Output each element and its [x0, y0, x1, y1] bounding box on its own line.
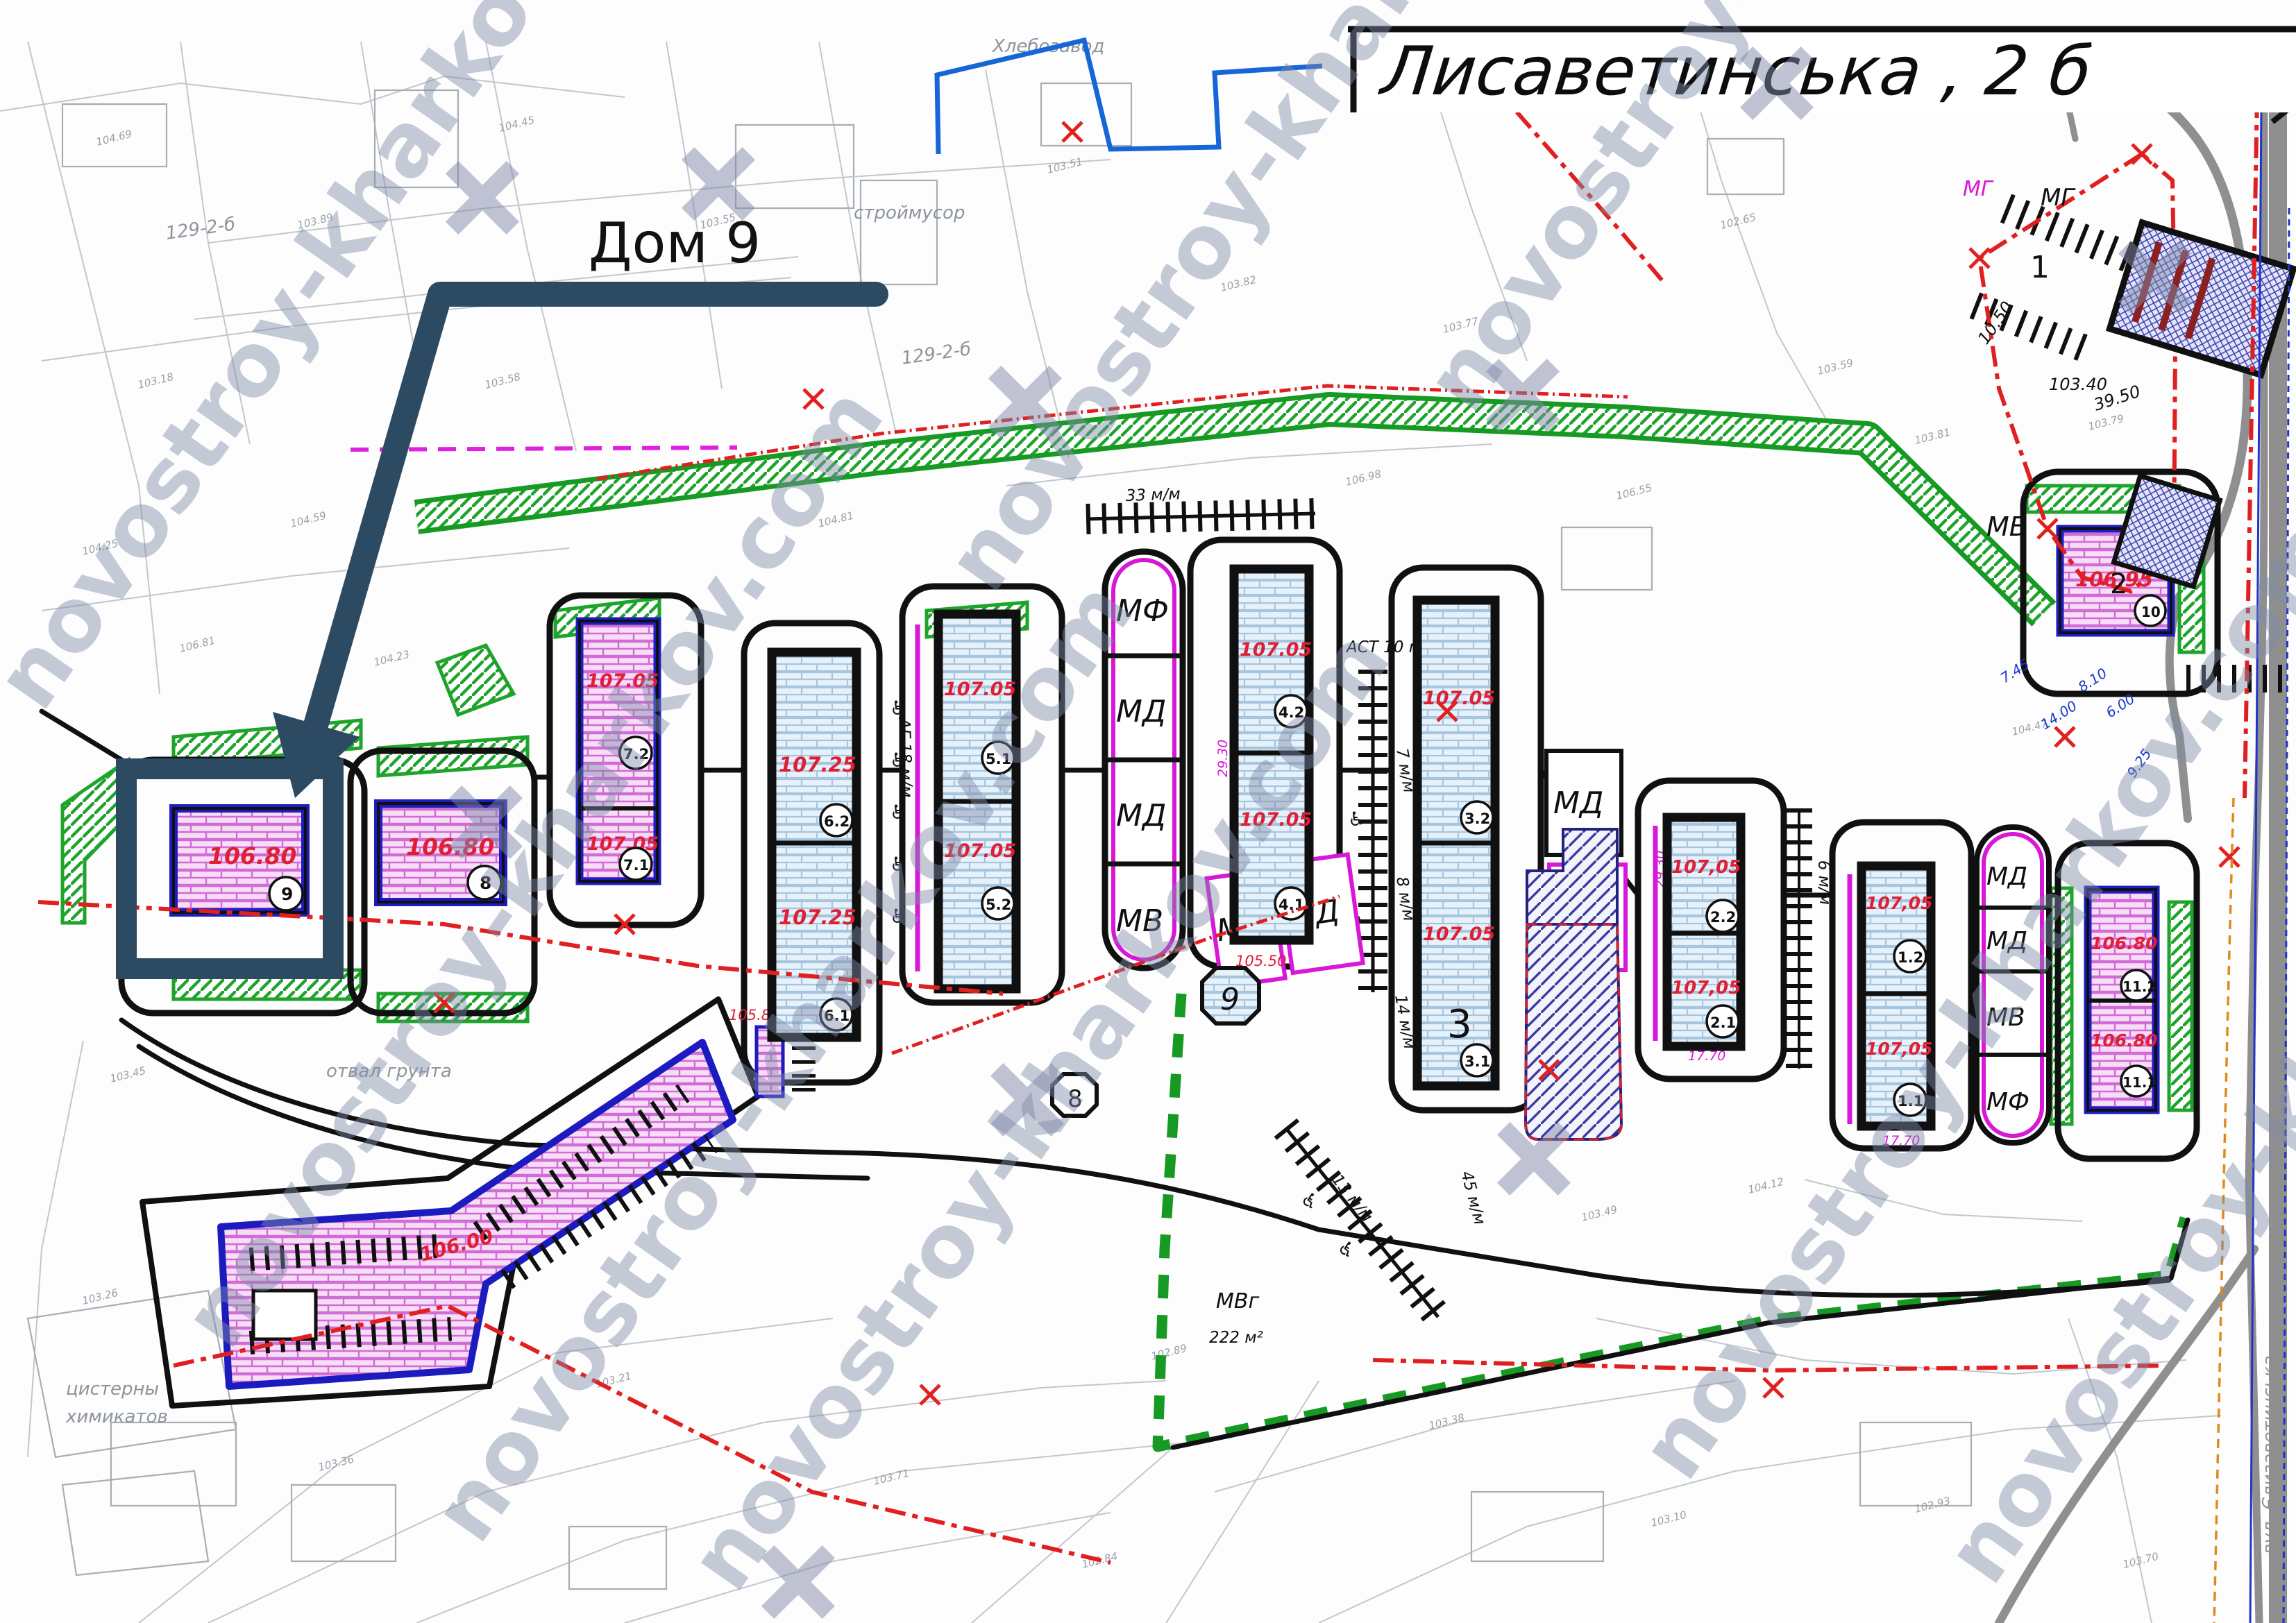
- tp9-elevation: 105.50: [1235, 953, 1286, 969]
- survey-mark: 103.49: [1580, 1203, 1619, 1224]
- house-9-label: Дом 9: [589, 211, 761, 275]
- wheelchair-icon: ♿: [1333, 1235, 1361, 1264]
- dim-10-50: 10.50: [1974, 298, 2017, 348]
- wheelchair-icon: ♿: [1348, 808, 1365, 831]
- mg-label-magenta: МГ: [1963, 177, 1994, 201]
- building-11-2-elevation: 106.80: [2091, 933, 2157, 953]
- building-3-1-elevation: 107.05: [1423, 924, 1495, 945]
- survey-mark: 106.81: [178, 634, 217, 655]
- survey-mark: 103.38: [1428, 1411, 1466, 1432]
- mg-label-black: МГ: [2041, 184, 2076, 212]
- parking-33-label: 33 м/м: [1125, 485, 1181, 505]
- tp9-number: 9: [1220, 982, 1240, 1017]
- site-plan-map: 104.69103.89104.45103.55103.51103.82103.…: [0, 0, 2296, 1623]
- site-building-1-number: 1: [2030, 250, 2050, 285]
- building-9-number: 9: [281, 884, 293, 904]
- building-9: 106.80 9: [174, 808, 305, 912]
- building-2-2-number: 2.2: [1710, 909, 1736, 926]
- wheelchair-icon: ♿: [1297, 1187, 1324, 1215]
- survey-mark: 103.10: [1650, 1509, 1688, 1529]
- stroymusor-label: строймусор: [854, 203, 965, 223]
- survey-mark: 104.69: [95, 128, 133, 148]
- survey-mark: 103.36: [317, 1453, 355, 1474]
- wheelchair-icon: ♿: [890, 749, 907, 772]
- watermark-x-logo-icon: [761, 1545, 835, 1619]
- dim-7-45: 7.45: [1998, 656, 2032, 686]
- cell-mf-b: МФ: [1986, 1088, 2029, 1116]
- building-3-2-number: 3.2: [1464, 810, 1490, 827]
- building-6-2-number: 6.2: [824, 813, 850, 830]
- site-plan-page: 104.69103.89104.45103.55103.51103.82103.…: [0, 0, 2296, 1623]
- wheelchair-icon: ♿: [890, 697, 907, 720]
- building-3-2-elevation: 107.05: [1423, 688, 1495, 709]
- survey-mark: 103.81: [1914, 426, 1952, 447]
- building-6-2-elevation: 107.25: [779, 753, 856, 776]
- survey-mark: 103.79: [2087, 412, 2125, 433]
- building-1-2-number: 1.2: [1898, 949, 1923, 966]
- survey-mark: 106.55: [1615, 482, 1653, 502]
- parking-45-label: 45 м/м: [1457, 1169, 1489, 1227]
- survey-mark: 103.45: [109, 1064, 147, 1085]
- dim-103-40: 103.40: [2049, 375, 2107, 394]
- parcel-label-2: 129-2-б: [900, 339, 972, 369]
- himikatov-label: химикатов: [65, 1407, 168, 1427]
- building-11-1-number: 11.1: [2122, 1074, 2156, 1091]
- building-3-1-number: 3.1: [1464, 1053, 1490, 1070]
- cisterny-label: цистерны: [66, 1379, 159, 1400]
- mvg-label: МВг: [1216, 1289, 1259, 1314]
- survey-mark: 103.26: [81, 1286, 119, 1307]
- building-2-2-elevation: 107,05: [1671, 857, 1741, 878]
- cell-md-right3: МД: [1553, 785, 1603, 821]
- building-1-2-elevation: 107,05: [1866, 893, 1932, 913]
- building-5-2-number: 5.2: [986, 897, 1011, 913]
- building-10-number: 10: [2141, 604, 2161, 620]
- survey-mark: 103.59: [1816, 357, 1855, 377]
- building-9-elevation: 106.80: [208, 842, 296, 869]
- survey-mark: 103.71: [872, 1467, 911, 1488]
- building-11-1-elevation: 106.80: [2091, 1030, 2157, 1051]
- survey-mark: 103.18: [137, 371, 175, 391]
- survey-mark: 103.51: [1046, 155, 1084, 176]
- cell-mv-near10: МВ: [1986, 511, 2027, 542]
- survey-mark: 104.12: [1747, 1175, 1785, 1196]
- building-2: 107,05 107,05 2.2 2.1: [1667, 817, 1741, 1046]
- site-building-2-number: 2: [2110, 568, 2127, 600]
- cell-md: МД: [1116, 694, 1166, 729]
- watermark-x-logo-icon: [682, 147, 755, 221]
- building-11-2-number: 11.2: [2122, 978, 2156, 995]
- building-2-1-number: 2.1: [1710, 1014, 1736, 1031]
- survey-mark: 106.98: [1344, 468, 1383, 488]
- cell-md: МД: [1116, 798, 1166, 833]
- survey-mark: 104.45: [498, 114, 536, 135]
- survey-mark: 102.93: [1914, 1495, 1952, 1515]
- title-banner: Лисаветинська , 2 б: [1348, 28, 2296, 112]
- watermark-x-logo-icon: [446, 161, 519, 235]
- parking-6-label: 6 м/м: [1814, 860, 1834, 905]
- survey-mark: 104.59: [289, 509, 328, 530]
- survey-mark: 103.58: [484, 371, 522, 391]
- building-2-1-elevation: 107,05: [1671, 978, 1741, 999]
- area-label: 222 м²: [1209, 1329, 1263, 1347]
- building-3: 107.05 107.05 3.2 3.1 3: [1417, 600, 1495, 1086]
- building-7-1-number: 7.1: [623, 857, 649, 874]
- building-3-block-number: 3: [1447, 1002, 1472, 1047]
- survey-mark: 104.23: [373, 648, 411, 669]
- hatched-area: [1526, 829, 1621, 1139]
- parcel-label: 129-2-б: [164, 214, 237, 244]
